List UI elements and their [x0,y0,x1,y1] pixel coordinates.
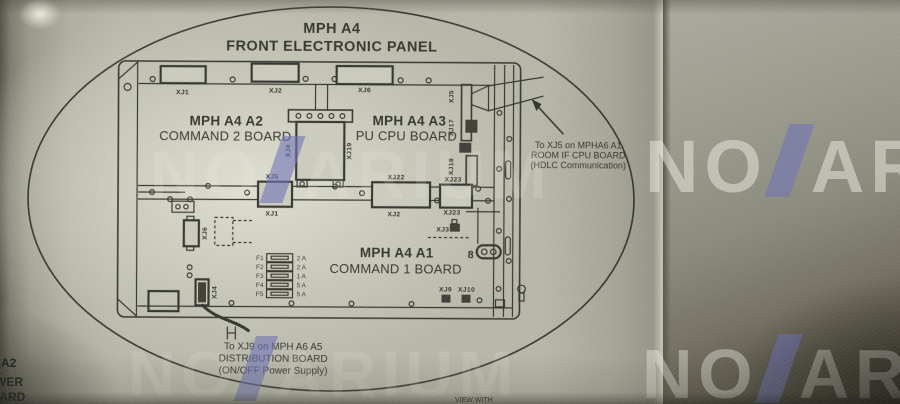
connectors-xj9-xj10: XJ9 XJ10 [439,287,475,303]
connector-column-right: XJ5 XJ17 XJ18 [448,77,544,186]
label-xj1-top: XJ1 [176,89,189,96]
label-xj19-central: XJ19 [346,143,353,160]
callout-right: To XJ5 on MPHA6 A1 ROOM IF CPU BOARD (HD… [530,99,626,170]
label-xj5-mid: XJ5 [266,174,279,181]
label-xj5-right: XJ5 [449,90,456,103]
connector-mid-xj5-xj1: XJ5 XJ1 [258,174,292,218]
callout-bottom: To XJ9 on MPH A6 A5 DISTRIBUTION BOARD (… [219,341,328,377]
connector-top-xj1: XJ1 [161,66,206,96]
connector-mid-xj23: XJ23 XJ23 [440,177,500,217]
fuse-rating: 2 A [297,255,307,262]
connector-mid-xj22-xj2: XJ22 XJ2 [372,174,430,218]
xj3-area: XJ3 [428,220,470,238]
board-cpu-subtitle: PU CPU BOARD [356,128,457,144]
fuse-rating: 5 A [297,282,307,289]
board-command1-title: MPH A4 A1 [360,245,434,260]
label-xj22-mid: XJ22 [388,174,405,181]
callout-bottom-line1: To XJ9 on MPH A6 A5 [224,341,323,353]
callout-bottom-line3: (ON/OFF Power Supply) [219,365,328,377]
fuse-name: F3 [256,273,264,280]
label-xj3: XJ3 [436,227,449,234]
left-edge-fragment-line2: WER [0,376,23,388]
fuse-name: F5 [256,291,264,298]
page-gap-shadow [663,0,671,404]
label-xj6-top: XJ6 [358,87,371,94]
fuse-rating: 5 A [296,291,306,298]
label-xj23-bottom: XJ23 [443,210,460,217]
board-command2-subtitle: COMMAND 2 BOARD [159,128,291,144]
connector-top-xj6: XJ6 [337,66,393,94]
board-command2-title: MPH A4 A2 [190,113,264,128]
label-xj18-right: XJ18 [448,158,455,175]
connector-top-xj2: XJ2 [252,64,299,95]
callout-right-line1: To XJ5 on MPHA6 A1 [535,140,622,150]
fuse-rating: 1 A [297,273,307,280]
callout-right-line3: (HDLC Communication) [530,160,626,171]
fuse-list: F1 2 A F2 2 A F3 1 A F4 5 A F5 5 A [256,254,307,299]
bottom-caption-fragment: VIEW WITH [455,397,493,404]
component-left-xj6: XJ6 [184,216,209,250]
diagram-title-line2: FRONT ELECTRONIC PANEL [226,38,437,55]
label-xj9: XJ9 [439,287,452,294]
label-xj4-left: XJ4 [211,286,218,299]
connector-8-pill: 8 [468,245,501,261]
label-xj10: XJ10 [458,287,475,294]
diagram-title-line1: MPH A4 [303,21,360,37]
fuse-name: F4 [256,282,264,289]
dashed-socket [215,217,252,245]
board-cpu-title: MPH A4 A3 [373,113,447,128]
label-8: 8 [468,249,474,261]
label-xj4-central: XJ4 [285,144,292,157]
front-panel-diagram: MPH A4 FRONT ELECTRONIC PANEL [0,0,664,404]
callout-right-line2: ROOM IF CPU BOARD [531,150,626,160]
left-edge-fragment-line3: OARD [0,391,25,403]
component-central: XJ4 XJ19 [285,84,354,187]
connector-left-xj4: XJ4 [195,279,248,339]
fuse-name: F1 [256,255,264,262]
label-xj1-mid: XJ1 [265,211,278,218]
board-command1-subtitle: COMMAND 1 BOARD [329,261,461,277]
left-edge-fragment-line1: A2 [1,357,16,369]
fuse-name: F2 [256,264,264,271]
callout-bottom-line2: DISTRIBUTION BOARD [219,353,328,365]
bottom-left-component [148,291,178,311]
label-xj2-top: XJ2 [269,88,282,95]
label-xj6-left: XJ6 [202,227,209,240]
label-xj2-mid: XJ2 [387,211,400,218]
fuse-rating: 2 A [297,264,307,271]
label-xj23-top: XJ23 [445,177,462,184]
manual-page-photo: MPH A4 FRONT ELECTRONIC PANEL [0,0,900,404]
right-page-paper [663,0,900,404]
